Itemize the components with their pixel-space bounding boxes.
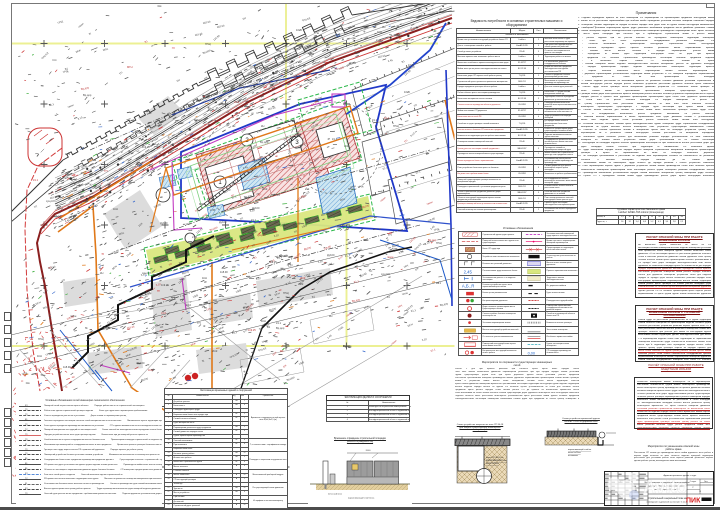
svg-text:2,45: 2,45 — [464, 269, 473, 274]
svg-text:песка h=10см: песка h=10см — [568, 452, 581, 454]
svg-text:возведение надземной части (ли: возведение надземной части (лист 1 из 2) — [647, 501, 688, 504]
svg-text:бетонный блок: бетонный блок — [328, 492, 342, 495]
svg-text:Административное здание с подз: Административное здание с подз. — [664, 474, 697, 477]
svg-text:14: 14 — [699, 491, 701, 493]
svg-text:вл. 141, корпус 2, этап 2.1: вл. 141, корпус 2, этап 2.1 — [654, 489, 680, 491]
svg-text:2000: 2000 — [366, 450, 372, 452]
svg-text:Стадия: Стадия — [690, 481, 696, 483]
svg-text:выравнивающий слой из: выравнивающий слой из — [568, 448, 591, 451]
svg-text:Строительный генеральный план: Строительный генеральный план на — [647, 497, 687, 500]
svg-text:выравнивающем слое: выравнивающем слое — [486, 460, 508, 462]
svg-text:Лист: Лист — [704, 481, 708, 483]
svg-text:основание: основание — [568, 455, 579, 457]
svg-text:плиты 2П-30-18 на: плиты 2П-30-18 на — [486, 457, 504, 459]
svg-text:выравнивающий слой песка: выравнивающий слой песка — [348, 496, 375, 499]
svg-text:адресу: г. Москва, Варшавское: адресу: г. Москва, Варшавское шоссе, — [649, 486, 686, 488]
svg-text:0,00: 0,00 — [527, 351, 534, 355]
svg-text:ПИК: ПИК — [686, 498, 701, 505]
svg-text:А,Б..Я: А,Б..Я — [462, 284, 474, 289]
svg-text:Жилой комплекс с подземной авт: Жилой комплекс с подземной автостоянкой … — [644, 481, 690, 484]
svg-text:песка h=10см: песка h=10см — [486, 463, 499, 465]
